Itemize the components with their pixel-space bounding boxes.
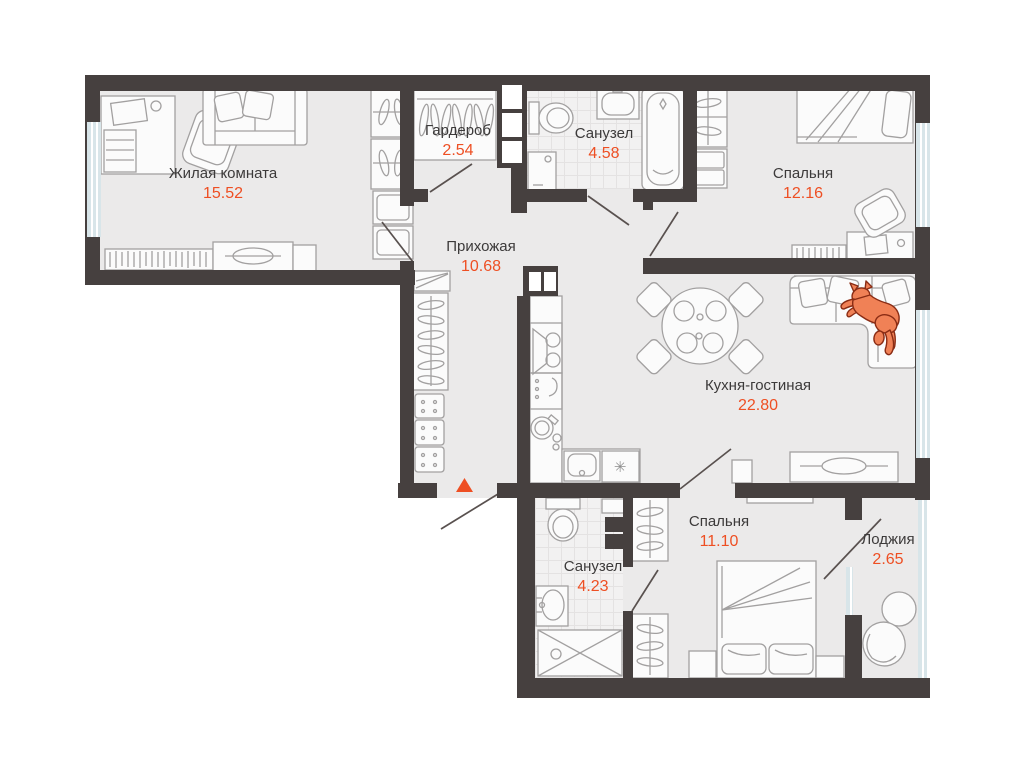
wall-loggia-block [845,498,862,520]
wall-lower-top-l [530,483,680,498]
tv-stand-kitchen [732,452,898,483]
window-loggia [918,500,929,678]
room-name: Спальня [689,513,749,530]
wall-hall-bottom-r [497,483,530,498]
desk [101,96,175,174]
wall-loggia-partition [845,615,862,680]
wall-bottom [517,678,930,698]
room-area: 11.10 [689,533,749,551]
room-area: 4.23 [564,578,622,596]
wall-hall-bottom-l [398,483,437,498]
desk-bedroom-top [847,232,913,260]
bathtub [642,88,684,190]
dining-table [635,281,765,376]
room-area: 2.54 [425,142,491,160]
bed-top [797,87,913,143]
wall-step [643,196,653,210]
hall-shoe-rack [414,271,450,291]
room-area: 22.80 [705,397,811,415]
wall-bedroom-top-bottom [643,258,915,274]
wall-bath-top-bottom-r [633,189,690,202]
door-bathroom-bottom [632,570,658,611]
room-label-living: Жилая комната 15.52 [169,165,277,203]
door-entry [441,494,498,529]
window-kitchen [916,310,930,458]
room-area: 4.58 [575,145,633,163]
room-label-bath-top: Санузел 4.58 [575,125,633,163]
wall-bath-top-bottom-l [511,189,587,202]
room-label-kitchen: Кухня-гостиная 22.80 [705,377,811,415]
toilet-top [529,102,573,134]
window-bedroom-top [916,123,930,227]
nightstand-left [689,651,716,678]
kitchen-counter: ✳ [530,296,640,483]
door-bedroom-top [650,212,678,256]
wall-bath-bedroom [683,75,697,202]
nightstand-right [816,656,844,678]
washer-symbol: ✳ [614,458,627,476]
room-name: Санузел [564,558,622,575]
door-wardrobe [430,164,472,192]
room-name: Санузел [575,125,633,142]
loggia-table [882,592,916,626]
room-name: Кухня-гостиная [705,377,811,394]
room-label-loggia: Лоджия 2.65 [861,531,914,569]
hall-wardrobe [413,293,448,390]
wall-lower-top-r [735,483,930,498]
closet-bedroom-bottom [632,497,668,678]
room-area: 10.68 [446,258,516,276]
room-label-wardrobe: Гардероб 2.54 [425,122,491,160]
wall-kitchen-hall [517,296,530,483]
window-loggia-partition [846,567,853,615]
floor-plan: ✳ [0,0,1024,768]
room-label-hallway: Прихожая 10.68 [446,238,516,276]
room-area: 12.16 [773,185,833,203]
wall-living-wardrobe [400,75,414,206]
wall-bath-bedroom-b [623,611,633,680]
room-label-bedroom-top: Спальня 12.16 [773,165,833,203]
door-bedroom-bottom [680,449,731,489]
wall-wardrobe-bottom [400,189,428,202]
wall-bath-bottom-left [517,498,535,680]
wall-bath-bedroom-t [623,498,633,567]
entry-arrow [456,478,473,492]
room-name: Спальня [773,165,833,182]
bookshelf-living [105,249,213,270]
wall-living-bottom [85,270,415,285]
room-name: Гардероб [425,122,491,139]
room-area: 2.65 [861,551,914,569]
room-name: Жилая комната [169,165,277,182]
wall-hall-left [400,261,414,498]
bed-bottom [717,561,816,678]
room-name: Прихожая [446,238,516,255]
sofa [203,89,307,145]
tv-stand-living [213,242,316,271]
boiler-cabinet [528,152,556,190]
window-living [87,122,101,237]
room-label-bedroom-bottom: Спальня 11.10 [689,513,749,551]
room-label-bath-bottom: Санузел 4.23 [564,558,622,596]
shower [538,630,622,676]
toilet-bottom [546,498,580,541]
door-bathroom-top [588,196,629,225]
hall-shoe-boxes [415,394,444,472]
room-name: Лоджия [861,531,914,548]
room-area: 15.52 [169,185,277,203]
